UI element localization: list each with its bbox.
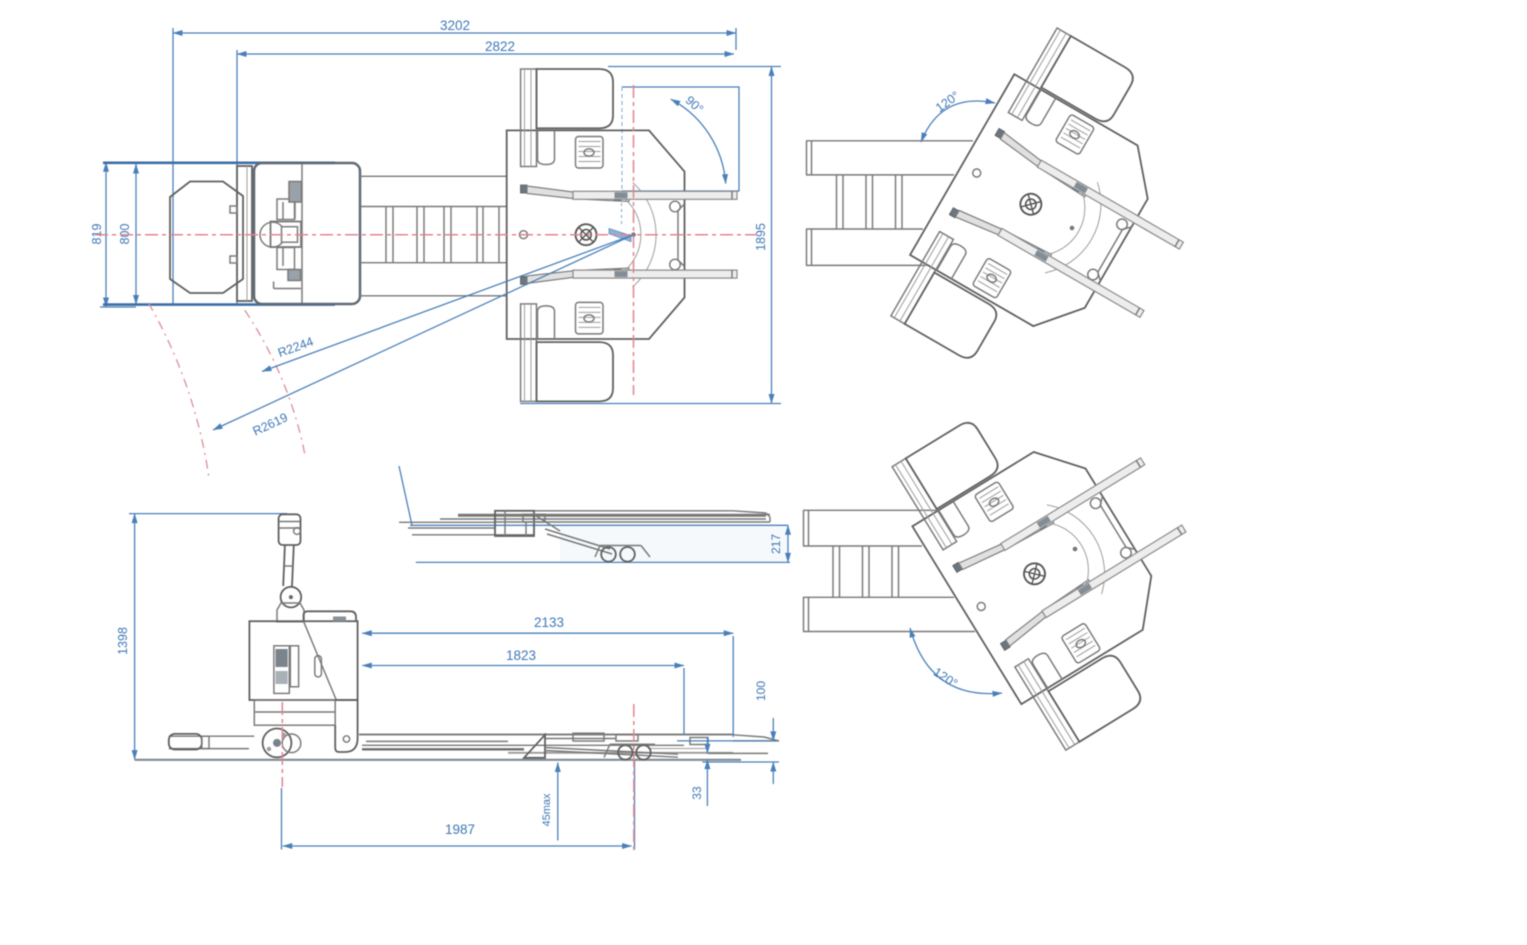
svg-text:45max: 45max [541,793,553,827]
svg-text:1895: 1895 [754,223,768,251]
svg-text:2133: 2133 [534,615,564,630]
svg-text:1823: 1823 [506,648,536,663]
svg-text:90°: 90° [683,93,706,116]
svg-text:1398: 1398 [116,627,130,655]
svg-text:2822: 2822 [485,39,515,54]
svg-text:217: 217 [769,534,783,554]
svg-text:3202: 3202 [440,18,470,33]
svg-text:120°: 120° [933,89,962,116]
svg-text:R2619: R2619 [251,410,290,438]
svg-text:33: 33 [690,786,704,800]
svg-text:R2244: R2244 [276,334,315,360]
svg-text:100: 100 [754,681,768,701]
svg-text:1987: 1987 [445,822,475,837]
